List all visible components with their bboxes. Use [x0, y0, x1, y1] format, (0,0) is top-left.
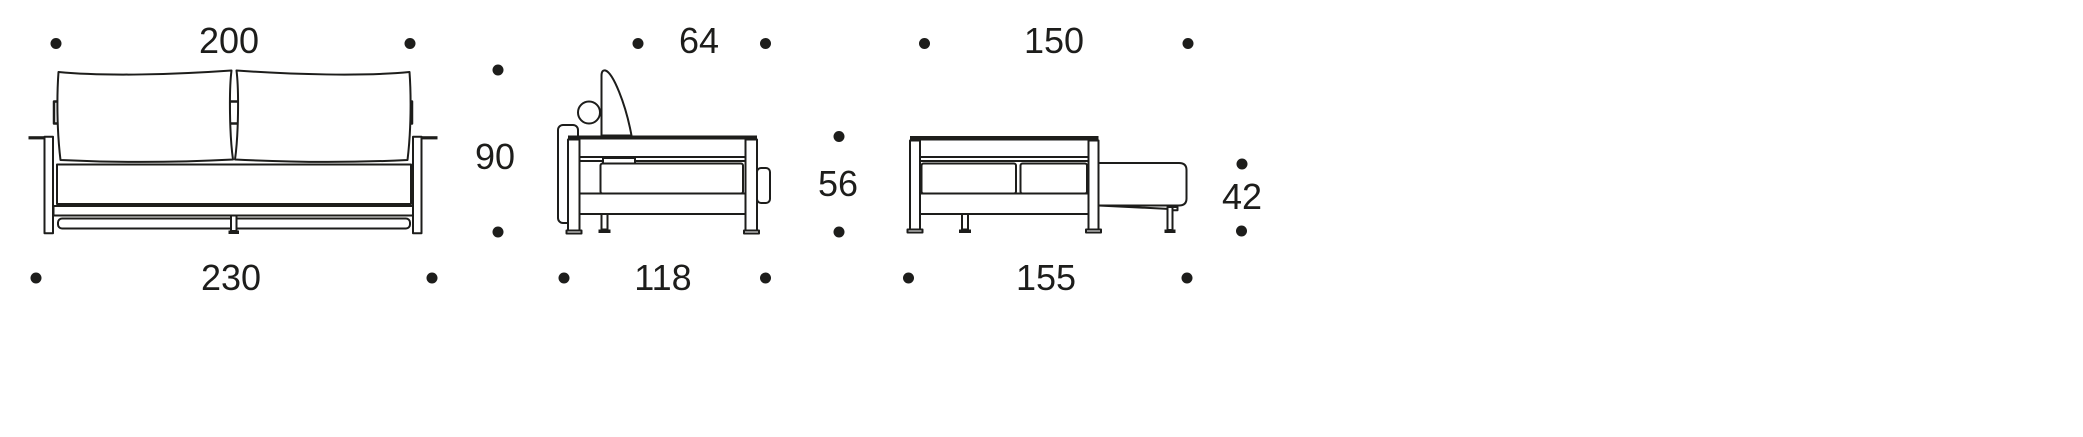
back-leg	[910, 141, 920, 230]
lounger-leg-bracket	[1173, 207, 1178, 210]
front-bracket	[757, 168, 770, 203]
seat-top-edge	[568, 136, 757, 140]
lounger-leg-foot	[1165, 230, 1176, 234]
mattress-section-left	[922, 164, 1017, 194]
front-height-dimension-label: 90	[475, 136, 515, 177]
back-leg-foot	[567, 231, 582, 234]
support-leg	[602, 214, 608, 230]
side-bottom-dimension-label: 118	[634, 257, 691, 298]
dimension-dot	[1183, 38, 1194, 49]
sofa-side-view-closed-drawing	[558, 70, 770, 233]
lounger-section	[1099, 163, 1187, 206]
dimension-dot	[919, 38, 930, 49]
mattress-section-right	[1021, 164, 1088, 194]
frame-rail-upper	[54, 206, 414, 216]
front-leg	[1089, 141, 1099, 230]
back-cushion-profile	[602, 70, 632, 135]
right-arm-cap	[422, 136, 438, 139]
front-top-dimension-label: 200	[199, 20, 259, 61]
lounger-top-dimension-label: 150	[1024, 20, 1084, 61]
back-leg	[568, 140, 580, 234]
front-leg-foot	[744, 231, 759, 234]
bottom-rail	[920, 194, 1089, 215]
under-seat-rail	[920, 157, 1089, 161]
back-cushion-left	[57, 71, 233, 162]
side-top-dimension-label: 64	[679, 20, 719, 61]
sofa-side-view-extended-drawing	[908, 136, 1187, 233]
diagram-svg: 200 230 90 64 118 56 150 155 42	[0, 0, 2083, 437]
seat-top-edge	[910, 136, 1099, 141]
front-leg-foot	[1086, 230, 1101, 233]
support-leg	[962, 214, 968, 230]
lounger-bottom-dimension-label: 155	[1016, 257, 1076, 298]
dimension-dot	[427, 273, 438, 284]
left-arm-cap	[29, 136, 45, 139]
dimension-dot	[1182, 273, 1193, 284]
support-leg-foot	[599, 230, 611, 234]
left-arm-post	[45, 137, 54, 234]
furniture-dimension-diagram: 200 230 90 64 118 56 150 155 42	[0, 0, 2083, 437]
side-height-dimension-label: 56	[818, 163, 858, 204]
lounger-height-dimension-label: 42	[1222, 176, 1262, 217]
dimension-dot	[834, 131, 845, 142]
dimension-dot	[31, 273, 42, 284]
right-arm-post	[413, 137, 422, 234]
dimension-dot	[493, 65, 504, 76]
center-leg	[231, 216, 237, 232]
dimension-dot	[1237, 159, 1248, 170]
support-leg-foot	[959, 230, 971, 234]
back-cushion-right	[235, 71, 411, 162]
dimension-dot	[760, 273, 771, 284]
dimension-dot	[51, 38, 62, 49]
front-leg	[746, 140, 758, 234]
headrest-knob	[578, 102, 600, 124]
bottom-rail	[580, 194, 746, 215]
dimension-dot	[1236, 226, 1247, 237]
front-bottom-dimension-label: 230	[201, 257, 261, 298]
dimension-dot	[760, 38, 771, 49]
back-leg-foot	[908, 230, 923, 233]
dimension-dot	[559, 273, 570, 284]
dimension-dot	[493, 227, 504, 238]
dimension-dot	[405, 38, 416, 49]
dimension-dot	[834, 227, 845, 238]
sofa-front-view-drawing	[29, 71, 438, 235]
seat-cushion	[57, 165, 411, 205]
dimension-dot	[633, 38, 644, 49]
mattress-handle	[603, 158, 635, 164]
center-leg-foot	[229, 231, 240, 235]
dimension-dot	[903, 273, 914, 284]
folded-mattress	[601, 164, 744, 194]
